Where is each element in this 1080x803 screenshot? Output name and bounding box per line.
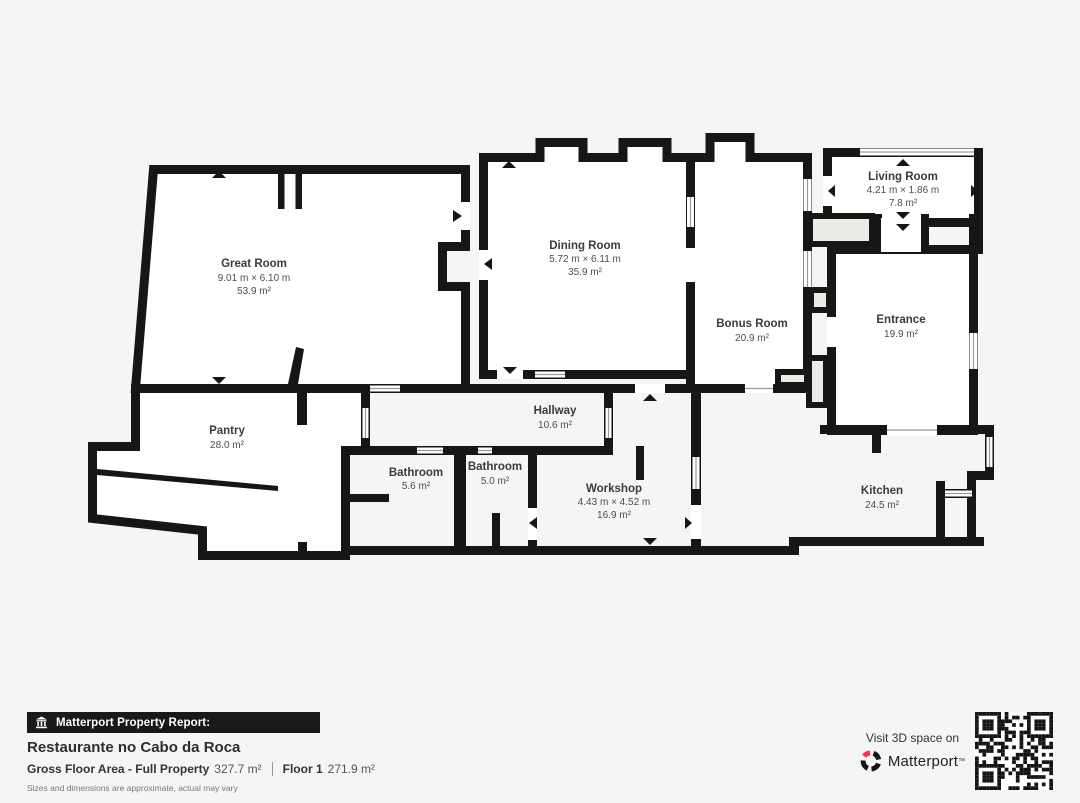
trademark-symbol: ™ <box>958 758 965 765</box>
label-great-room-area: 53.9 m² <box>237 286 272 297</box>
label-pantry: Pantry <box>209 425 245 437</box>
property-title: Restaurante no Cabo da Roca <box>27 739 240 756</box>
label-dining-dims: 5.72 m × 6.11 m <box>549 254 621 265</box>
floor-label: Floor 1 <box>283 762 323 776</box>
label-bathroom-1: Bathroom <box>389 467 443 479</box>
label-dining: Dining Room <box>549 240 621 252</box>
building-icon <box>35 716 48 729</box>
floor-plan: Great Room 9.01 m × 6.10 m 53.9 m² Dinin… <box>0 0 1080 700</box>
visit-3d-label: Visit 3D space on <box>845 731 980 745</box>
label-great-room-dims: 9.01 m × 6.10 m <box>218 273 291 284</box>
label-bathroom-1-area: 5.6 m² <box>402 481 431 492</box>
report-bar-label: Matterport Property Report: <box>56 717 210 729</box>
room-entrance <box>832 250 974 431</box>
visit-3d-block: Visit 3D space on Matterport™ <box>845 731 980 772</box>
floor-value: 271.9 m² <box>328 762 375 776</box>
label-entrance-area: 19.9 m² <box>884 329 919 340</box>
label-workshop: Workshop <box>586 483 642 495</box>
room-pantry <box>93 389 366 556</box>
label-bonus-area: 20.9 m² <box>735 333 770 344</box>
label-hallway: Hallway <box>534 405 577 417</box>
gfa-label: Gross Floor Area - Full Property <box>27 762 209 776</box>
label-living-area: 7.8 m² <box>889 198 918 209</box>
label-kitchen-area: 24.5 m² <box>865 500 900 511</box>
report-bar: Matterport Property Report: <box>27 712 320 733</box>
matterport-brand: Matterport™ <box>845 750 980 772</box>
label-bonus: Bonus Room <box>716 318 788 330</box>
label-living-dims: 4.21 m × 1.86 m <box>867 185 940 196</box>
label-bathroom-2-area: 5.0 m² <box>481 476 510 487</box>
room-bonus <box>691 138 808 389</box>
qr-code <box>975 712 1053 790</box>
label-living: Living Room <box>868 171 938 183</box>
label-workshop-dims: 4.43 m × 4.52 m <box>578 497 651 508</box>
area-stats: Gross Floor Area - Full Property 327.7 m… <box>27 762 375 776</box>
matterport-logo-icon <box>860 750 882 772</box>
label-workshop-area: 16.9 m² <box>597 510 632 521</box>
label-kitchen: Kitchen <box>861 485 903 497</box>
label-dining-area: 35.9 m² <box>568 267 603 278</box>
label-hallway-area: 10.6 m² <box>538 420 573 431</box>
label-great-room: Great Room <box>221 258 287 270</box>
label-bathroom-2: Bathroom <box>468 461 522 473</box>
property-report-page: Great Room 9.01 m × 6.10 m 53.9 m² Dinin… <box>0 0 1080 803</box>
disclaimer: Sizes and dimensions are approximate, ac… <box>27 783 238 793</box>
label-pantry-area: 28.0 m² <box>210 440 245 451</box>
gfa-value: 327.7 m² <box>214 762 261 776</box>
label-entrance: Entrance <box>876 314 925 326</box>
stats-divider <box>272 762 273 776</box>
matterport-wordmark: Matterport <box>888 753 958 770</box>
